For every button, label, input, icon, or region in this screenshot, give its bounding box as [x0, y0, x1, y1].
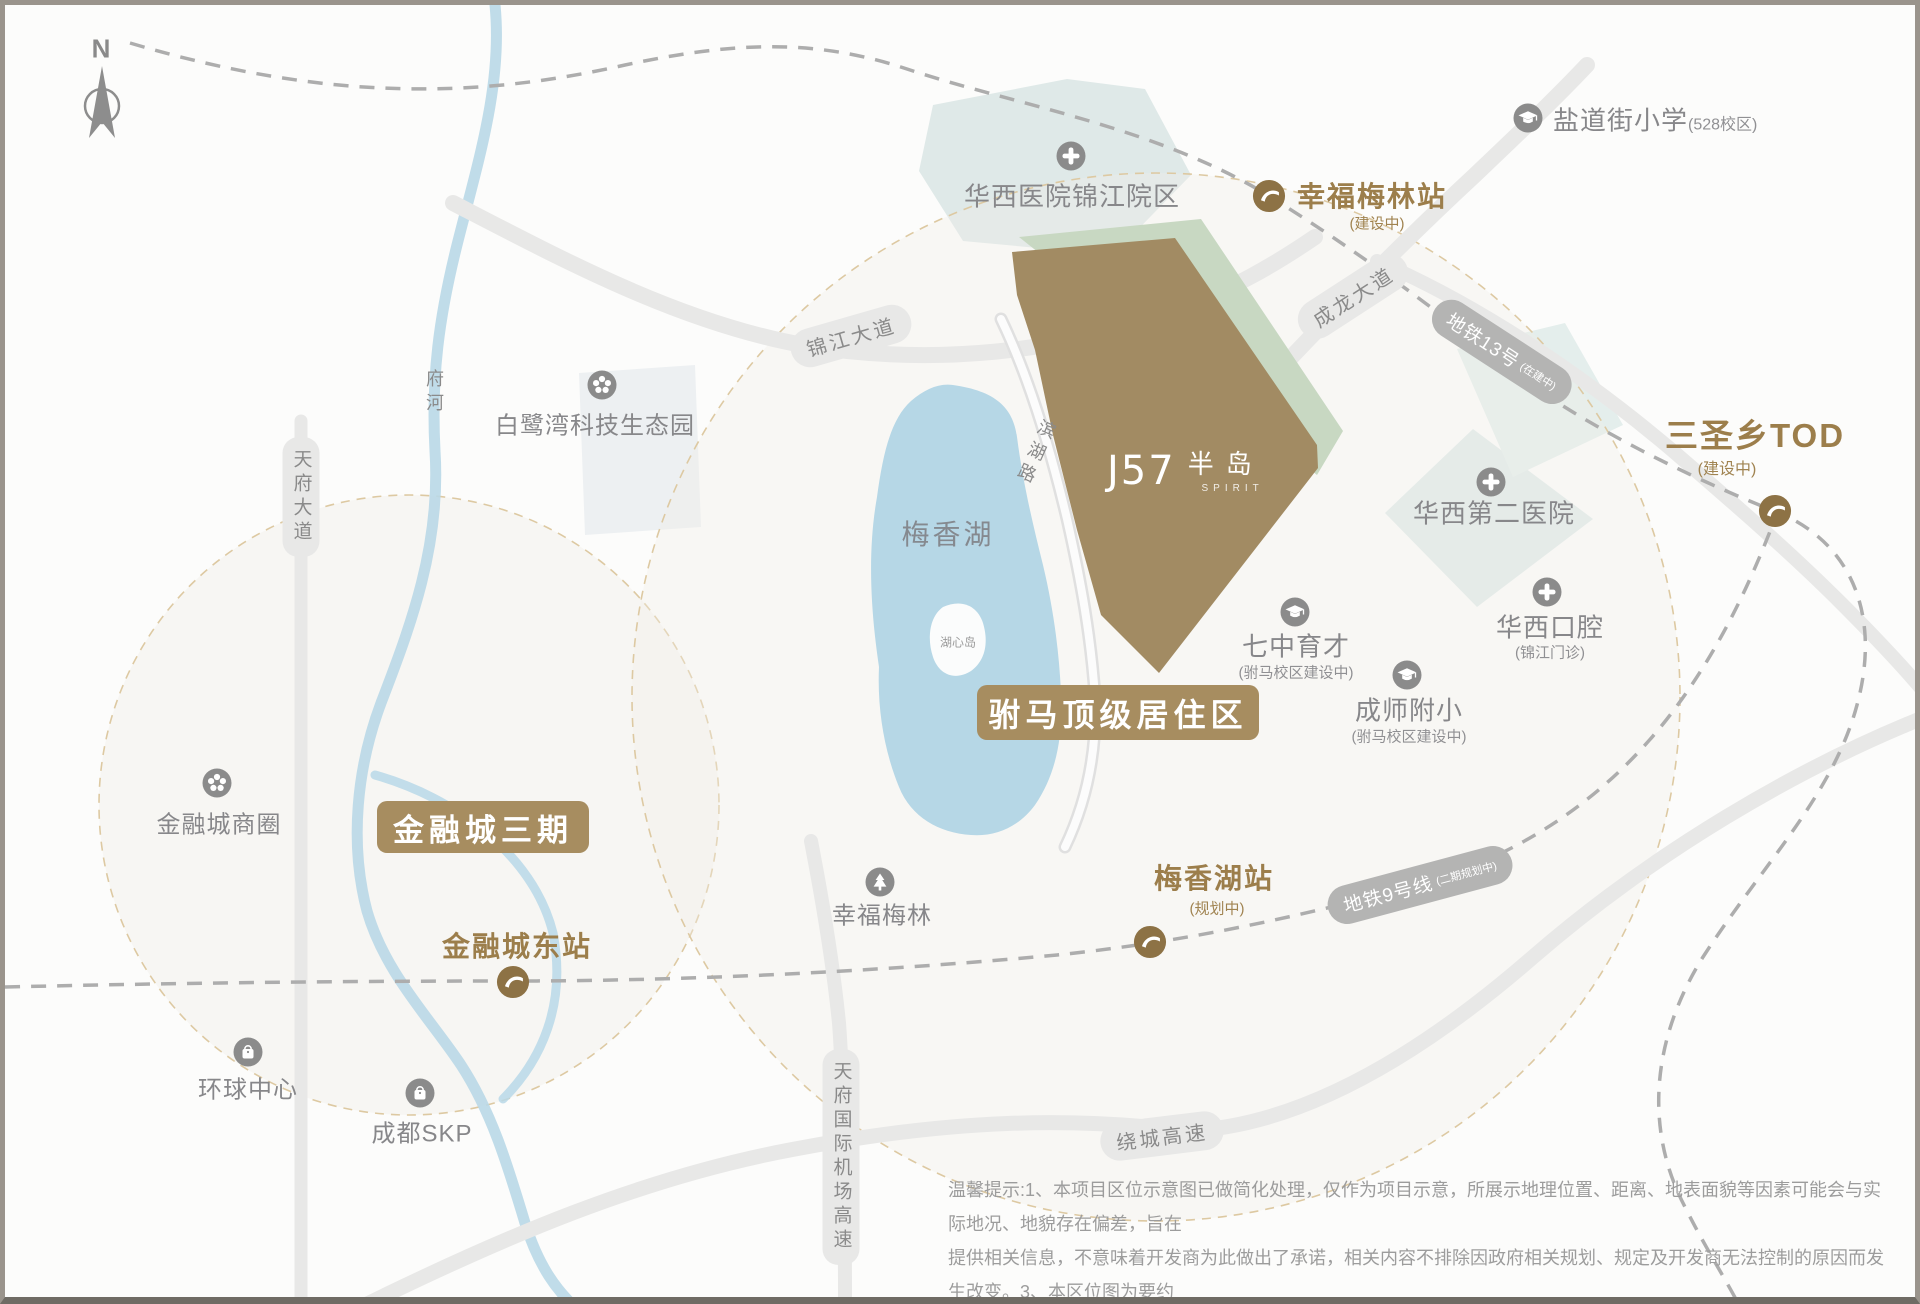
island-label: 湖心岛 [940, 634, 976, 651]
metro-station-icon-meixianghu [1133, 925, 1167, 959]
poi-jinrongcheng-shangquan: 金融城商圈 [157, 805, 282, 840]
map-canvas: N J57 半岛 SPIRIT 金融城三期 驸马顶级居住区 幸福梅林站 (建设中… [0, 0, 1920, 1304]
poi-yandaojie-sub: (528校区) [1688, 117, 1757, 134]
station-meixianghu-status: (规划中) [1190, 898, 1245, 919]
park-icon-xingfumeilin [865, 867, 895, 897]
poi-chengdu-skp: 成都SKP [371, 1114, 472, 1149]
poi-huaxi-second: 华西第二医院 [1413, 494, 1575, 531]
poi-yandaojie: 盐道街小学(528校区) [1553, 101, 1757, 138]
disclaimer-line1: 温馨提示:1、本项目区位示意图已做简化处理，仅作为项目示意，所展示地理位置、距离… [948, 1173, 1898, 1241]
badge-financial-city-phase3: 金融城三期 [377, 801, 589, 853]
station-xingfumeilin: 幸福梅林站 [1297, 175, 1447, 215]
poi-bailuwan: 白鹭湾科技生态园 [495, 406, 695, 441]
road-label-airport-expressway: 天府国际机场高速 [823, 1049, 860, 1265]
school-icon-yandaojie [1513, 103, 1543, 133]
project-logo-main: J57 [1107, 451, 1176, 491]
road-label-tianfu-avenue: 天府大道 [283, 437, 320, 557]
poi-yandaojie-name: 盐道街小学 [1553, 106, 1688, 136]
metro-station-icon-xingfumeilin [1252, 179, 1286, 213]
disclaimer-line2: 提供相关信息，不意味着开发商为此做出了承诺，相关内容不排除因政府相关规划、规定及… [948, 1241, 1898, 1304]
poi-xingfumeilin-park: 幸福梅林 [832, 896, 932, 931]
poi-qizhong-yucai: 七中育才 [1242, 627, 1350, 664]
station-sanshengxiang-status: (建设中) [1698, 455, 1757, 479]
river-label: 府河 [421, 369, 447, 417]
metro-line13-status: (在建中) [1517, 358, 1560, 393]
metro-line9-status: (二期规划中) [1434, 857, 1498, 889]
badge-fuma-residence: 驸马顶级居住区 [977, 685, 1259, 740]
mall-icon-skp [405, 1078, 435, 1108]
poi-huanqiu-center: 环球中心 [198, 1070, 298, 1105]
project-logo-cn: 半岛 [1188, 451, 1264, 477]
project-logo-sub: SPIRIT [1188, 483, 1264, 494]
metro-station-icon-sanshengxiang [1758, 494, 1792, 528]
mall-icon-huanqiu [233, 1037, 263, 1067]
poi-chengshi-fuxiao: 成师附小 [1355, 691, 1463, 728]
poi-huaxi-jinjiang: 华西医院锦江院区 [964, 177, 1180, 214]
station-meixianghu: 梅香湖站 [1154, 857, 1274, 897]
hospital-icon-huaxi-second [1476, 467, 1506, 497]
park-icon-bailuwan [587, 370, 617, 400]
school-icon-chengshi [1392, 660, 1422, 690]
poi-huaxi-kouqiang: 华西口腔 [1496, 608, 1604, 645]
map-base-layer [5, 5, 1920, 1304]
project-logo: J57 半岛 SPIRIT [1107, 451, 1264, 494]
poi-qizhong-yucai-sub: (驸马校区建设中) [1239, 662, 1354, 683]
station-sanshengxiang-tod: 三圣乡TOD [1665, 409, 1845, 457]
lake-label: 梅香湖 [901, 513, 994, 553]
disclaimer: 温馨提示:1、本项目区位示意图已做简化处理，仅作为项目示意，所展示地理位置、距离… [948, 1173, 1898, 1304]
hospital-icon-huaxi-kouqiang [1532, 577, 1562, 607]
hospital-icon-huaxi-jinjiang [1056, 141, 1086, 171]
compass-icon [79, 60, 125, 144]
business-icon-jinrongcheng [202, 768, 232, 798]
metro-station-icon-jinrongchengdong [496, 965, 530, 999]
station-jinrongchengdong: 金融城东站 [442, 925, 592, 965]
poi-huaxi-kouqiang-sub: (锦江门诊) [1515, 642, 1585, 663]
station-xingfumeilin-status: (建设中) [1350, 213, 1405, 234]
poi-chengshi-fuxiao-sub: (驸马校区建设中) [1352, 726, 1467, 747]
school-icon-qizhong [1280, 597, 1310, 627]
